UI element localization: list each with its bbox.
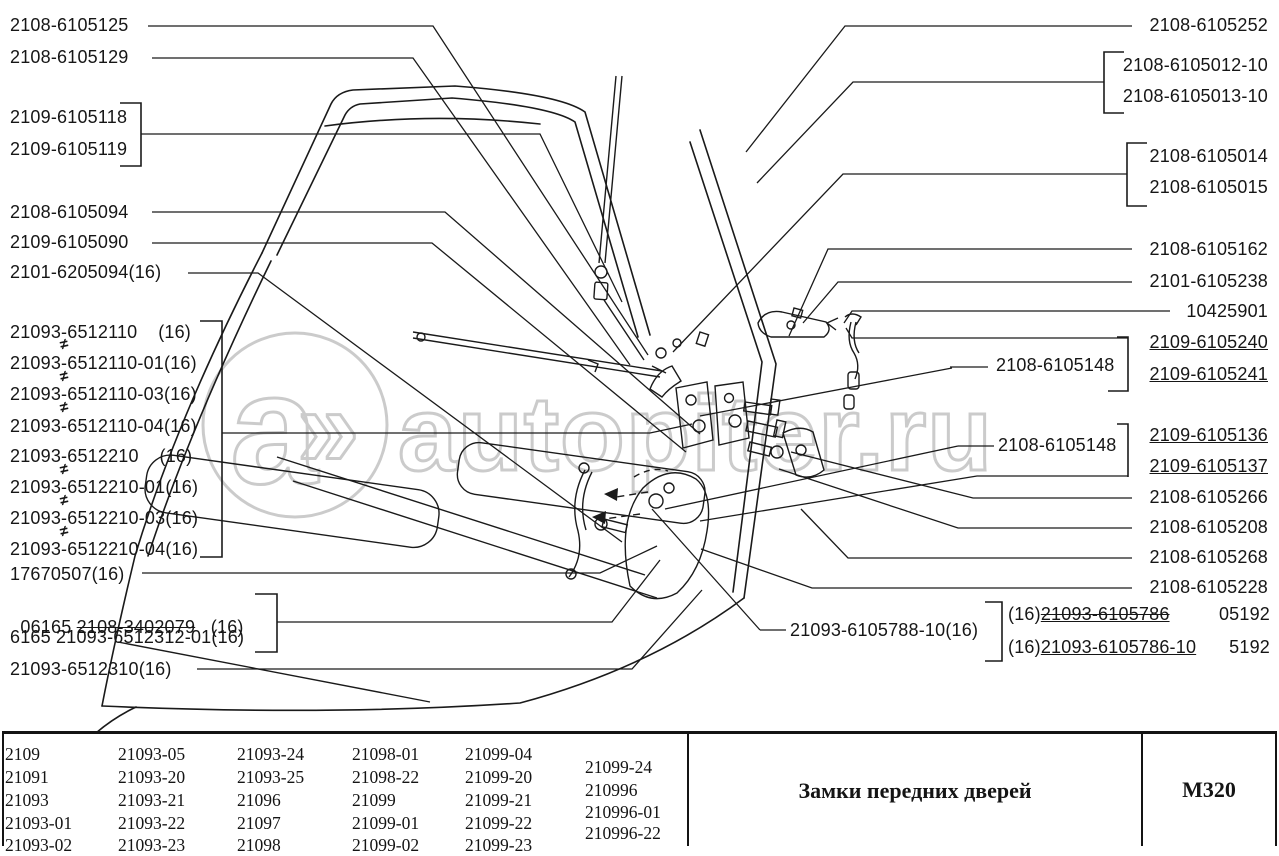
part-label: 2108-6105148 [996, 355, 1115, 376]
model-cell: 21093-21 [118, 790, 185, 811]
part-label: 2109-6105118 [10, 107, 127, 128]
sheet-title: Замки передних дверей [689, 778, 1141, 804]
part-label: 2108-6105094 [10, 202, 129, 223]
outer-handle [758, 311, 829, 337]
part-label: 21093-6512110-03(16) [10, 384, 197, 405]
part-label: 2108-6105015 [1149, 177, 1268, 198]
part-label: 2108-6105268 [1149, 547, 1268, 568]
part-label: 21093-6512210-01(16) [10, 477, 198, 498]
model-cell: 21099-21 [465, 790, 532, 811]
part-label: 21093-6512210 (16) [10, 446, 192, 467]
model-cell: 21093 [5, 790, 49, 811]
part-number-superseded: 21093-6105786 [1041, 604, 1170, 625]
qty-prefix: (16) [1008, 604, 1041, 625]
sheet-code: М320 [1143, 777, 1275, 803]
qty-prefix: (16) [1008, 637, 1041, 658]
part-label: 2109-6105137 [1149, 456, 1268, 477]
model-cell: 21098-22 [352, 767, 419, 788]
part-code: 05192 [1219, 604, 1270, 625]
part-label: 21093-6512210-03(16) [10, 508, 198, 529]
part-label: (16)21093-610578605192 [1008, 604, 1270, 625]
part-label: 2108-6105129 [10, 47, 129, 68]
part-label: 2109-6105240 [1149, 332, 1268, 353]
model-cell: 210996-01 [585, 802, 661, 823]
model-cell: 21093-20 [118, 767, 185, 788]
part-label: 2108-6105148 [998, 435, 1117, 456]
model-cell: 21091 [5, 767, 49, 788]
part-label: 21093-6105788-10(16) [790, 620, 978, 641]
part-label: 2101-6205094(16) [10, 262, 161, 283]
part-label: 21093-6512210-04(16) [10, 539, 198, 560]
model-cell: 21093-22 [118, 813, 185, 834]
part-label: 2108-6105013-10 [1123, 86, 1268, 107]
part-label: 2109-6105241 [1149, 364, 1268, 385]
model-cell: 210996 [585, 780, 638, 801]
part-label: 10425901 [1186, 301, 1268, 322]
model-cell: 21099-22 [465, 813, 532, 834]
model-cell: 2109 [5, 744, 40, 765]
model-cell: 21099-24 [585, 757, 652, 778]
part-label: 2108-6105252 [1149, 15, 1268, 36]
part-label: 21093-6512310(16) [10, 659, 172, 680]
part-label: 21093-6512110-01(16) [10, 353, 197, 374]
part-label: 2109-6105119 [10, 139, 127, 160]
model-cell: 21093-25 [237, 767, 304, 788]
model-cell: 21099-01 [352, 813, 419, 834]
model-cell: 21093-05 [118, 744, 185, 765]
watermark-site-text: autopiter.ru [398, 375, 993, 493]
model-cell: 21097 [237, 813, 281, 834]
model-cell: 21099-04 [465, 744, 532, 765]
model-cell: 21099-20 [465, 767, 532, 788]
catalog-page: { "diagram": { "watermark": { "logo_lett… [0, 0, 1279, 846]
watermark-logo-arrow: » [297, 365, 359, 490]
part-label: 6165 21093-6512312-01(16) [10, 627, 244, 648]
part-code: 5192 [1229, 637, 1270, 658]
part-label: 21093-6512110 (16) [10, 322, 191, 343]
part-label: 2108-6105014 [1149, 146, 1268, 167]
part-label: 2108-6105266 [1149, 487, 1268, 508]
model-cell: 21098-01 [352, 744, 419, 765]
model-cell: 210996-22 [585, 823, 661, 844]
part-label: 2101-6105238 [1149, 271, 1268, 292]
table-border-left [2, 731, 4, 846]
part-label: 2109-6105136 [1149, 425, 1268, 446]
table-border-right [1275, 731, 1277, 846]
part-label: (16)21093-6105786-105192 [1008, 637, 1270, 658]
part-label: 2109-6105090 [10, 232, 129, 253]
part-label: 17670507(16) [10, 564, 125, 585]
part-label: 2108-6105208 [1149, 517, 1268, 538]
part-label: 2108-6105012-10 [1123, 55, 1268, 76]
model-cell: 21093-24 [237, 744, 304, 765]
model-cell: 21096 [237, 790, 281, 811]
model-cell: 21099 [352, 790, 396, 811]
model-cell: 21093-01 [5, 813, 72, 834]
part-number: 21093-6105786-10 [1041, 637, 1196, 658]
part-label: 2108-6105162 [1149, 239, 1268, 260]
lock-cable [849, 322, 858, 379]
part-label: 2108-6105228 [1149, 577, 1268, 598]
part-label: 2108-6105125 [10, 15, 129, 36]
table-border-top [2, 731, 1277, 734]
part-label: 21093-6512110-04(16) [10, 416, 197, 437]
